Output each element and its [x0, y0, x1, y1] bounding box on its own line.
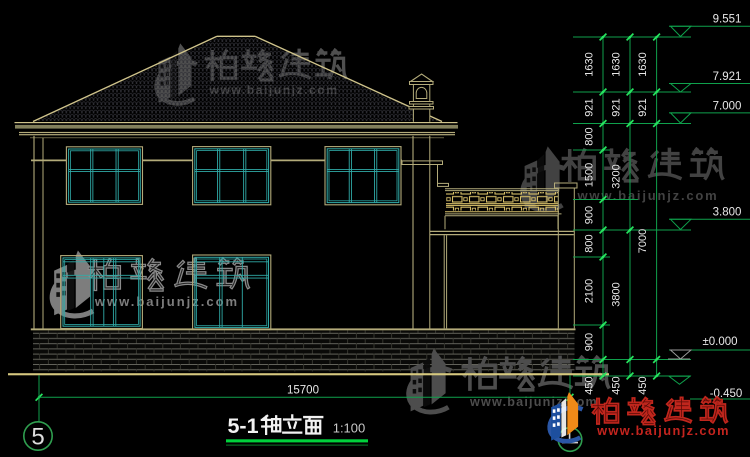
- svg-text:15700: 15700: [287, 385, 319, 397]
- svg-text:900: 900: [584, 333, 596, 351]
- svg-text:800: 800: [584, 234, 596, 252]
- svg-text:7.921: 7.921: [713, 71, 742, 83]
- svg-text:9.551: 9.551: [713, 14, 742, 26]
- svg-text:3800: 3800: [611, 282, 623, 306]
- svg-text:1:100: 1:100: [333, 421, 366, 436]
- svg-text:921: 921: [637, 98, 649, 116]
- svg-text:921: 921: [611, 98, 623, 116]
- svg-text:3.800: 3.800: [713, 207, 742, 219]
- svg-text:www.baijunjz.com: www.baijunjz.com: [577, 188, 719, 203]
- svg-text:1500: 1500: [584, 163, 596, 187]
- svg-text:450: 450: [584, 376, 596, 394]
- svg-text:5-1: 5-1: [227, 414, 258, 438]
- svg-text:800: 800: [584, 127, 596, 145]
- svg-text:450: 450: [611, 376, 623, 394]
- svg-text:450: 450: [637, 376, 649, 394]
- svg-text:1630: 1630: [637, 52, 649, 76]
- svg-text:1630: 1630: [611, 52, 623, 76]
- svg-text:www.baijunjz.com: www.baijunjz.com: [596, 423, 730, 438]
- svg-text:7000: 7000: [637, 229, 649, 253]
- svg-text:921: 921: [584, 98, 596, 116]
- svg-text:5: 5: [31, 424, 44, 451]
- svg-text:3200: 3200: [611, 164, 623, 188]
- svg-text:1630: 1630: [584, 52, 596, 76]
- svg-text:2100: 2100: [584, 279, 596, 303]
- svg-text:7.000: 7.000: [713, 101, 742, 113]
- svg-text:900: 900: [584, 206, 596, 224]
- svg-text:±0.000: ±0.000: [702, 336, 737, 348]
